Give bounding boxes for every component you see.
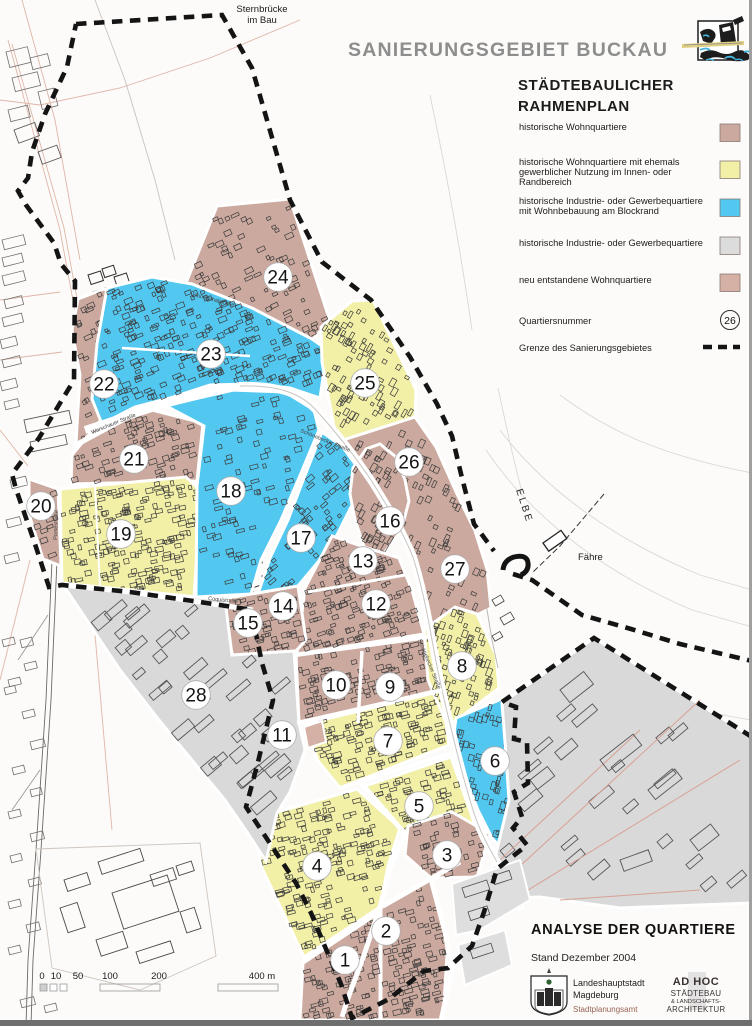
svg-text:Grenze des Sanierungsgebietes: Grenze des Sanierungsgebietes	[519, 343, 652, 353]
svg-text:mit Wohnbebauung am Blockrand: mit Wohnbebauung am Blockrand	[519, 206, 659, 216]
svg-text:1: 1	[340, 951, 351, 972]
svg-text:27: 27	[444, 560, 465, 581]
svg-text:RAHMENPLAN: RAHMENPLAN	[518, 98, 630, 115]
svg-text:25: 25	[354, 374, 375, 395]
svg-text:Magdeburg: Magdeburg	[573, 990, 619, 1000]
svg-text:16: 16	[379, 512, 400, 533]
svg-text:26: 26	[398, 453, 419, 474]
svg-text:19: 19	[110, 525, 131, 546]
svg-text:3: 3	[442, 846, 453, 867]
svg-text:5: 5	[414, 797, 425, 818]
svg-text:ANALYSE DER QUARTIERE: ANALYSE DER QUARTIERE	[531, 922, 736, 938]
svg-text:AD HOC: AD HOC	[673, 976, 719, 988]
svg-text:0: 0	[39, 971, 44, 982]
svg-text:21: 21	[123, 450, 144, 471]
svg-text:7: 7	[383, 732, 394, 753]
svg-text:15: 15	[237, 614, 258, 635]
svg-text:4: 4	[312, 857, 323, 878]
svg-text:Sternbrücke: Sternbrücke	[236, 4, 287, 15]
svg-text:12: 12	[365, 595, 386, 616]
svg-text:6: 6	[490, 752, 501, 773]
svg-text:100: 100	[102, 971, 118, 982]
svg-text:10: 10	[51, 971, 62, 982]
svg-text:20: 20	[30, 497, 51, 518]
svg-text:SANIERUNGSGEBIET BUCKAU: SANIERUNGSGEBIET BUCKAU	[348, 39, 668, 61]
svg-text:historische Wohnquartiere mit: historische Wohnquartiere mit ehemals	[519, 157, 680, 167]
svg-text:Stadtplanungsamt: Stadtplanungsamt	[573, 1005, 638, 1014]
svg-text:Stand Dezember 2004: Stand Dezember 2004	[531, 952, 636, 964]
svg-text:17: 17	[290, 529, 311, 550]
svg-text:Fähre: Fähre	[578, 552, 603, 563]
svg-text:22: 22	[93, 375, 114, 396]
svg-text:neu entstandene Wohnquartiere: neu entstandene Wohnquartiere	[519, 275, 652, 285]
svg-text:2: 2	[381, 922, 392, 943]
svg-text:Porsestraße: Porsestraße	[53, 510, 60, 540]
svg-text:Landeshauptstadt: Landeshauptstadt	[573, 978, 645, 988]
svg-text:historische Wohnquartiere: historische Wohnquartiere	[519, 122, 627, 132]
svg-text:26: 26	[724, 315, 736, 327]
svg-text:23: 23	[200, 345, 221, 366]
svg-text:50: 50	[73, 971, 84, 982]
svg-text:200: 200	[151, 971, 167, 982]
svg-text:10: 10	[325, 676, 346, 697]
svg-text:13: 13	[352, 552, 373, 573]
svg-text:14: 14	[272, 597, 294, 618]
svg-text:gewerblicher Nutzung im Innen-: gewerblicher Nutzung im Innen- oder	[519, 167, 671, 177]
svg-text:400 m: 400 m	[249, 971, 275, 982]
svg-text:9: 9	[385, 678, 396, 699]
svg-text:18: 18	[220, 482, 241, 503]
svg-text:im Bau: im Bau	[247, 15, 277, 26]
svg-text:STÄDTEBAULICHER: STÄDTEBAULICHER	[518, 77, 674, 94]
svg-text:Randbereich: Randbereich	[519, 177, 572, 187]
svg-text:Quartiersnummer: Quartiersnummer	[519, 316, 591, 326]
svg-text:historische Industrie- oder Ge: historische Industrie- oder Gewerbequart…	[519, 238, 703, 248]
svg-text:24: 24	[267, 268, 289, 289]
svg-text:8: 8	[457, 657, 468, 678]
svg-text:STÄDTEBAU: STÄDTEBAU	[671, 989, 722, 998]
svg-text:28: 28	[185, 686, 206, 707]
svg-text:historische Industrie- oder Ge: historische Industrie- oder Gewerbequart…	[519, 196, 703, 206]
svg-text:ARCHITEKTUR: ARCHITEKTUR	[667, 1005, 726, 1014]
svg-text:11: 11	[272, 726, 292, 747]
